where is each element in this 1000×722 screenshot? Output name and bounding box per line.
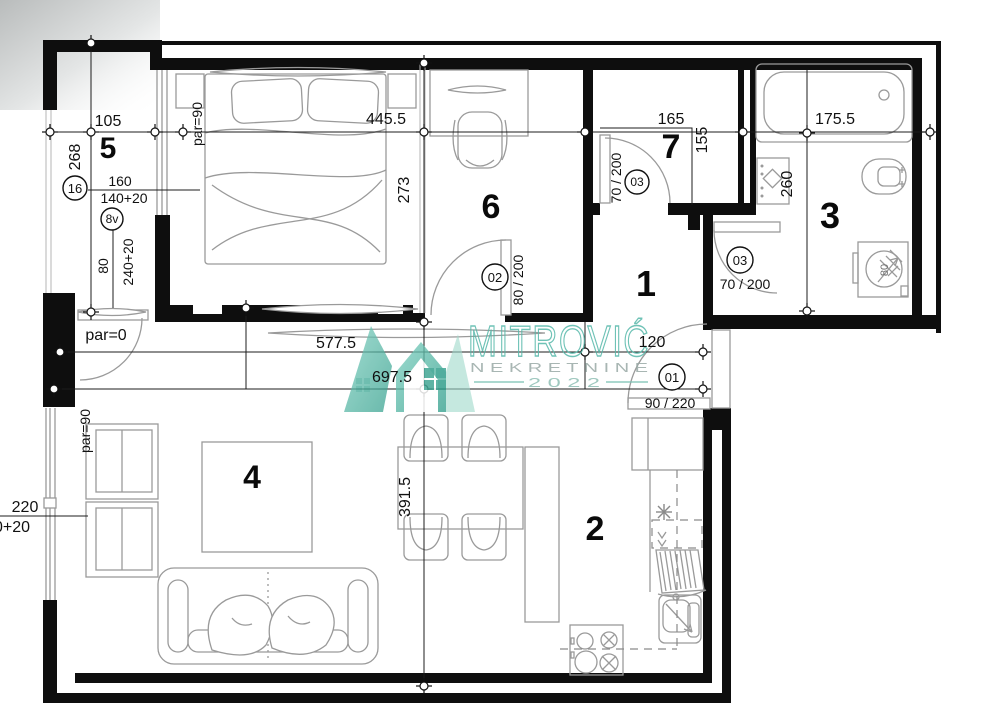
floor-plan-page: MITROVIĆ N E K R E T N I N E 2 0 2 2 5 6… [0,0,1000,722]
dim-175-5: 175.5 [815,111,855,128]
room-label-loggia: 5 [100,132,117,165]
door-size-03-closet: 70 / 200 [608,152,624,203]
svg-text:03: 03 [733,253,747,268]
dim-80v: 80 [95,258,111,274]
window-living-left [44,408,56,600]
dim-268: 268 [67,144,84,171]
dim-240-20: 240+20 [120,238,136,285]
dim-260: 260 [779,171,796,198]
dim-165: 165 [658,111,685,128]
ref-8v: 8v [101,208,123,230]
floor-plan: MITROVIĆ N E K R E T N I N E 2 0 2 2 5 6… [0,0,1000,722]
kitchen-peninsula [525,447,559,622]
kitchen-cabinet [632,418,703,470]
room-label-bathroom: 3 [820,195,840,236]
brand-subtitle: N E K R E T N I N E [470,360,649,375]
dining-chair [462,514,506,560]
ref-16: 16 [63,176,87,200]
dim-par90-left: par=90 [77,409,93,453]
stove [570,625,623,675]
nightstand-right [388,74,416,108]
dim-par90-top: par=90 [189,102,205,146]
dim-155: 155 [694,127,711,154]
light-symbol [656,504,672,520]
dim-577-5: 577.5 [316,335,356,352]
sofa [158,568,378,664]
brand-name: MITROVIĆ [468,317,650,366]
dining-chair [404,415,448,461]
dining-chair [462,415,506,461]
svg-text:8v: 8v [106,212,119,226]
svg-text:02: 02 [488,270,502,285]
brand-year: 2 0 2 2 [528,375,600,390]
dim-391-5: 391.5 [397,477,414,517]
svg-text:03: 03 [630,175,644,189]
armchair [86,424,158,499]
door-tag-01: 01 90 / 220 [645,364,696,411]
bathtub [756,64,912,142]
dim-160: 160 [108,173,132,189]
dim-140-20: 140+20 [100,190,147,206]
desk-chair [453,112,507,168]
desk [430,70,528,136]
dim-697-5: 697.5 [372,369,412,386]
door-loggia-leaf [78,310,148,380]
dim-0-20: 0+20 [0,519,30,536]
dim-washer-80: 80 [879,264,891,276]
door-size-02: 80 / 200 [510,254,526,305]
room-label-living: 4 [243,459,261,495]
dining-chair [404,514,448,560]
svg-text:16: 16 [68,181,82,196]
room-label-kitchen: 2 [586,510,605,548]
door-size-01: 90 / 220 [645,395,696,411]
svg-text:01: 01 [665,370,679,385]
page-corner-shade [0,0,160,110]
dim-par0: par=0 [85,327,126,344]
dim-105: 105 [95,113,122,130]
door-tag-03-closet: 03 70 / 200 [608,152,649,203]
room-label-bedroom: 6 [482,188,501,226]
entry-door-frame [712,330,730,408]
room-label-closet: 7 [662,128,681,166]
dim-220: 220 [12,499,39,516]
door-size-03-bath: 70 / 200 [720,276,771,292]
dim-273: 273 [396,177,413,204]
toilet [862,159,906,194]
dim-120: 120 [639,334,666,351]
kitchen-sink [659,594,701,643]
room-label-hall: 1 [636,263,656,304]
double-bed [205,68,386,265]
armchair [86,502,158,577]
dim-445-5: 445.5 [366,111,406,128]
dish-drainer [656,550,706,597]
